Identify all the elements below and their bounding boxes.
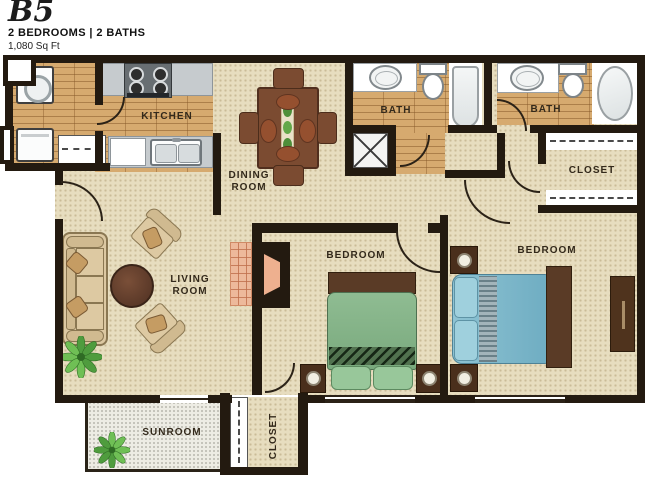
bath1-toilet-bowl [422, 73, 444, 100]
centerpiece-plant [283, 121, 292, 134]
room-label-bedroom2: BEDROOM [515, 245, 579, 257]
room-label-sunroom: SUNROOM [140, 427, 204, 439]
bed-footboard [546, 266, 572, 368]
room-label-closet-lower: CLOSET [268, 403, 280, 469]
lamp-icon [306, 371, 321, 386]
bath2-sink [510, 65, 544, 91]
sofa [62, 232, 108, 346]
plate [260, 119, 277, 143]
bathtub [452, 66, 479, 128]
bed-pillow [331, 366, 371, 390]
wall [538, 133, 546, 164]
dryer-panel [21, 134, 49, 137]
window [325, 395, 415, 403]
dresser-handle [622, 301, 625, 329]
wall [220, 393, 230, 475]
wall [345, 168, 396, 176]
bath2-toilet-bowl [562, 73, 584, 98]
plan-area: 1,080 Sq Ft [8, 41, 60, 52]
closet-shelf-dashes [550, 197, 633, 199]
stove-control-band [127, 93, 169, 97]
room-label-dining: DINING ROOM [221, 170, 277, 194]
stove [124, 63, 172, 98]
dining-chair [239, 112, 259, 144]
room-label-bedroom1: BEDROOM [324, 250, 388, 262]
bed-pillow [454, 277, 478, 318]
bed-blanket-band [329, 347, 415, 365]
dining-chair [273, 68, 304, 89]
hearth [230, 242, 252, 306]
room-label-bath2: BATH [526, 104, 566, 116]
garden-tub [597, 66, 633, 121]
wall [298, 393, 308, 475]
wall [252, 223, 398, 233]
utility-closet [353, 133, 388, 168]
plate [299, 119, 316, 143]
wall [55, 219, 63, 403]
floor-plan: B5 2 BEDROOMS | 2 BATHS 1,080 Sq Ft [0, 0, 650, 480]
closet-shelf-dashes [550, 140, 633, 142]
wall [345, 55, 353, 176]
closet-shelf-dashes [238, 401, 240, 463]
wall [213, 133, 221, 215]
faucet-icon [172, 138, 181, 142]
lamp-icon [422, 371, 437, 386]
kitchen-sink [150, 139, 202, 166]
wall [530, 125, 637, 133]
window-line [325, 399, 415, 401]
wall [538, 205, 637, 213]
wall [252, 223, 262, 395]
plant-icon [94, 432, 130, 468]
bath1-sink [369, 65, 402, 90]
bed-pillow [454, 320, 478, 361]
wall [308, 395, 325, 403]
dresser [610, 276, 635, 352]
plan-specs: 2 BEDROOMS | 2 BATHS [8, 27, 145, 39]
plan-code: B5 [8, 0, 54, 29]
burner-icon [129, 67, 144, 82]
sofa-armrest [66, 236, 104, 248]
dining-chair [317, 112, 337, 144]
sliding-door-line [160, 398, 208, 400]
plant-icon [60, 336, 102, 378]
lamp-icon [457, 253, 472, 268]
exterior-area [0, 171, 55, 480]
exterior-storage [3, 55, 36, 86]
burner-icon [153, 67, 168, 82]
wall [55, 395, 160, 403]
bed-footboard [328, 272, 416, 294]
sink-basin [178, 144, 200, 163]
wall [440, 215, 448, 395]
wall [95, 131, 103, 171]
plate [276, 146, 300, 162]
window [475, 395, 565, 403]
room-label-kitchen: KITCHEN [137, 111, 197, 123]
wall [220, 467, 308, 475]
room-label-bath1: BATH [376, 105, 416, 117]
dining-chair [273, 165, 304, 186]
wall [484, 55, 492, 133]
exterior-storage [0, 126, 14, 164]
window-line [475, 399, 565, 401]
sink-bowl [375, 71, 398, 86]
sink-bowl [516, 71, 540, 87]
sink-basin [155, 144, 177, 163]
bed-blanket-band [479, 276, 497, 362]
bed-pillow [373, 366, 413, 390]
lamp-icon [457, 371, 472, 386]
room-label-closet-upper: CLOSET [560, 165, 624, 177]
wall [415, 395, 475, 403]
wall [565, 395, 637, 403]
coffee-table [110, 264, 154, 308]
room-label-living: LIVING ROOM [157, 274, 223, 298]
dishwasher [110, 138, 146, 166]
dryer [16, 128, 54, 162]
plate [276, 94, 300, 110]
wall [637, 55, 645, 403]
wall [445, 170, 505, 178]
